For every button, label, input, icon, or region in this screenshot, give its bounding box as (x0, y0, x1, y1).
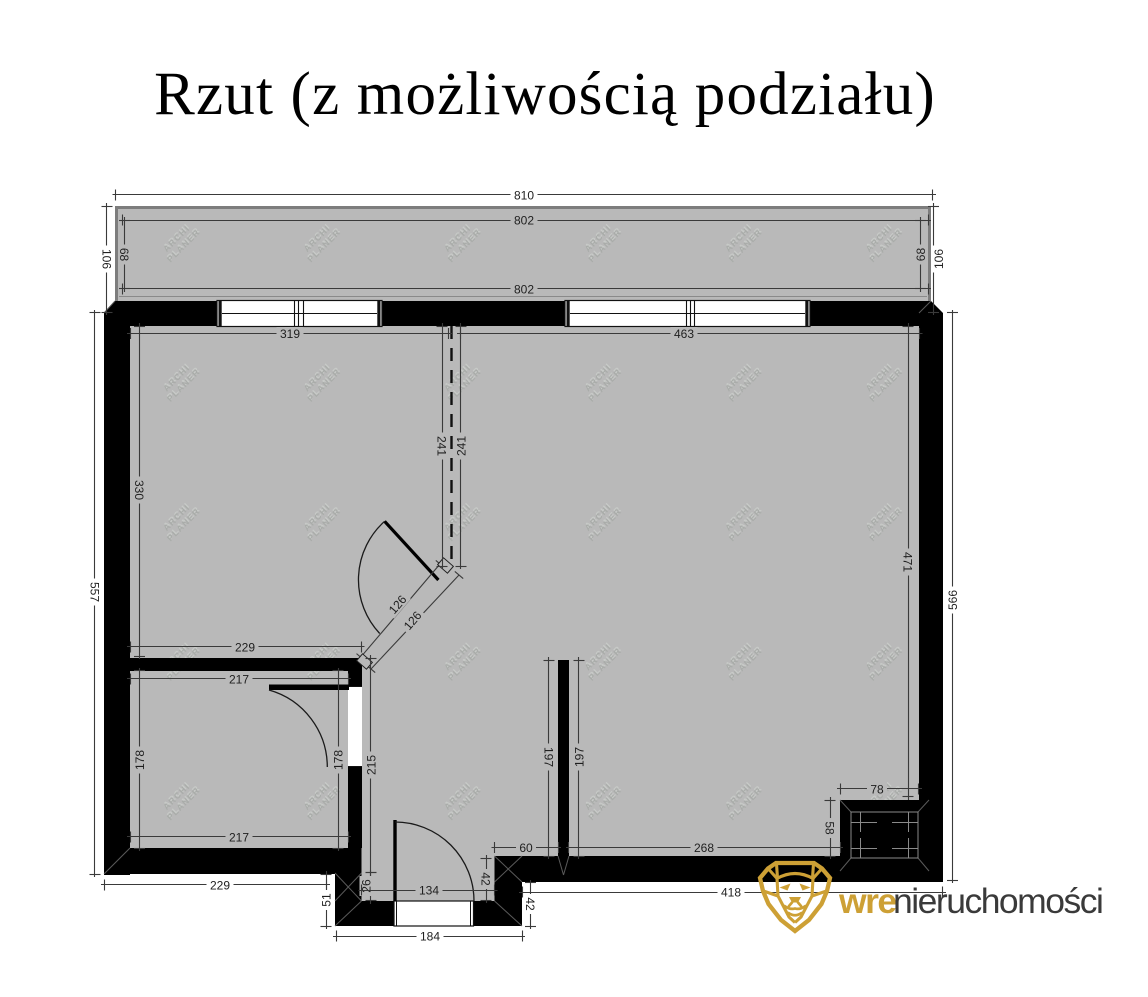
svg-text:60: 60 (519, 841, 533, 855)
svg-text:184: 184 (420, 929, 440, 943)
svg-text:68: 68 (914, 248, 928, 262)
svg-text:319: 319 (280, 327, 300, 341)
svg-text:229: 229 (235, 640, 255, 654)
svg-text:Rzut (z możliwością podziału): Rzut (z możliwością podziału) (154, 61, 936, 128)
svg-text:215: 215 (364, 755, 378, 775)
svg-text:463: 463 (674, 327, 694, 341)
svg-text:418: 418 (721, 885, 741, 899)
svg-text:68: 68 (117, 248, 131, 262)
svg-text:42: 42 (523, 897, 537, 911)
svg-text:268: 268 (694, 841, 714, 855)
svg-text:42: 42 (479, 872, 493, 886)
svg-text:471: 471 (901, 552, 915, 572)
svg-text:802: 802 (514, 282, 534, 296)
svg-text:241: 241 (454, 436, 468, 456)
svg-text:178: 178 (133, 750, 147, 770)
svg-text:178: 178 (331, 750, 345, 770)
svg-text:106: 106 (932, 249, 946, 269)
svg-text:802: 802 (514, 213, 534, 227)
svg-text:241: 241 (435, 436, 449, 456)
svg-text:wre: wre (838, 881, 896, 921)
svg-text:557: 557 (88, 582, 102, 602)
svg-text:229: 229 (210, 878, 230, 892)
svg-text:197: 197 (572, 747, 586, 767)
svg-text:217: 217 (229, 672, 249, 686)
svg-text:134: 134 (419, 883, 439, 897)
svg-text:810: 810 (514, 188, 534, 202)
svg-text:106: 106 (100, 249, 114, 269)
svg-text:197: 197 (542, 747, 556, 767)
svg-text:58: 58 (823, 821, 837, 835)
svg-text:78: 78 (870, 782, 884, 796)
svg-text:51: 51 (319, 893, 333, 907)
svg-text:217: 217 (229, 830, 249, 844)
svg-text:566: 566 (946, 590, 960, 610)
svg-text:nieruchomości: nieruchomości (893, 881, 1102, 921)
svg-text:330: 330 (132, 480, 146, 500)
